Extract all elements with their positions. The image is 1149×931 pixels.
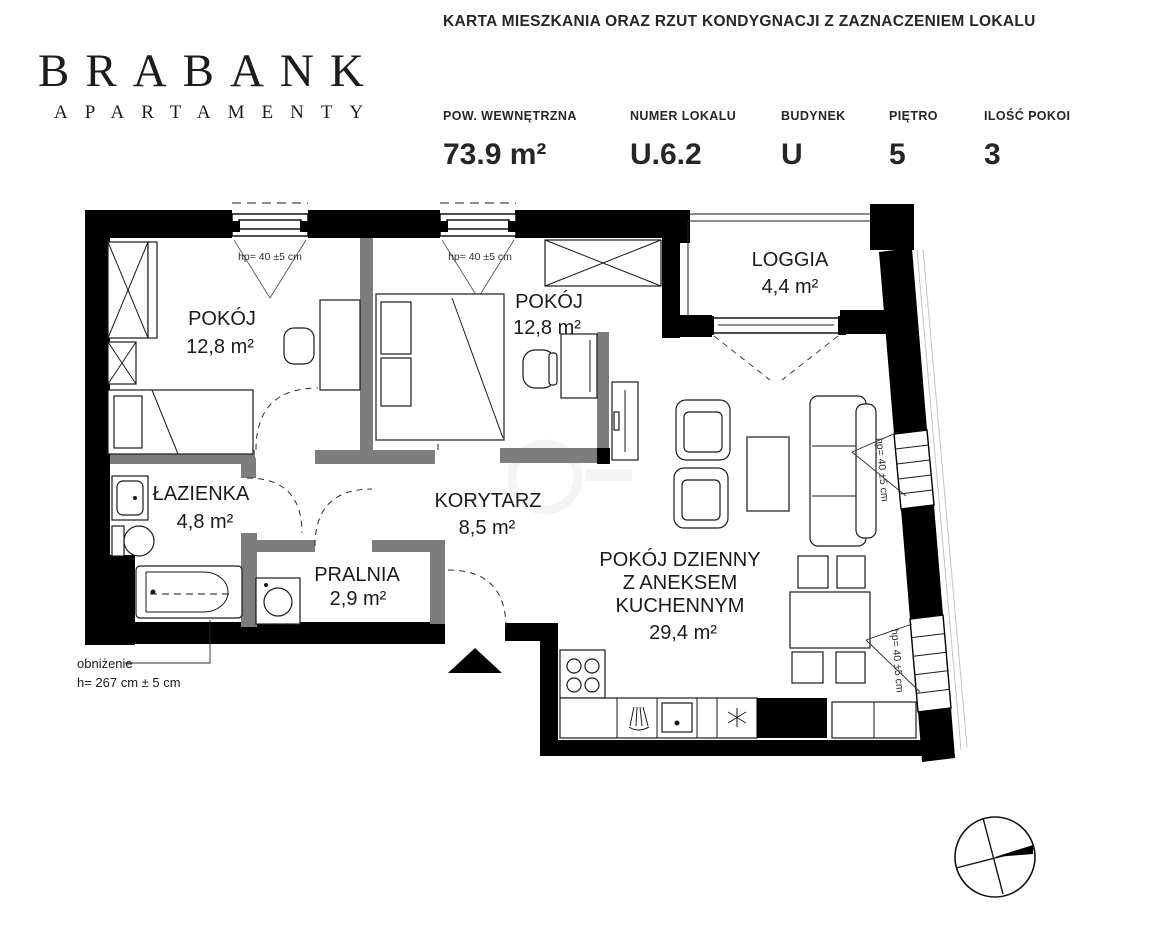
- window-height-note-2: hp= 40 ±5 cm: [448, 251, 512, 263]
- window-height-note-1: hp= 40 ±5 cm: [238, 251, 302, 263]
- room1-area: 12,8 m²: [186, 336, 254, 358]
- laundry-name: PRALNIA: [314, 564, 400, 586]
- desk: [320, 300, 360, 390]
- room2-name: POKÓJ: [515, 290, 583, 313]
- loggia-name: LOGGIA: [752, 249, 829, 271]
- window-living-lower: [910, 615, 951, 712]
- desk-cabinet: [561, 334, 597, 398]
- room2-area: 12,8 m²: [513, 317, 581, 339]
- dining-chair: [837, 556, 865, 588]
- room1-name: POKÓJ: [188, 307, 256, 330]
- door-laundry: [315, 489, 372, 546]
- compass-icon: [955, 817, 1035, 897]
- living-name-2: Z ANEKSEM: [623, 572, 737, 594]
- loggia-door-window: [706, 316, 846, 380]
- living-name-1: POKÓJ DZIENNY: [599, 548, 760, 571]
- hallway-name: KORYTARZ: [434, 490, 541, 512]
- floor-plan: POKÓJ 12,8 m² POKÓJ 12,8 m² LOGGIA 4,4 m…: [0, 0, 1149, 931]
- dining-table: [790, 592, 870, 648]
- stove: [560, 650, 605, 698]
- dining-chair: [836, 652, 865, 683]
- door-bathroom: [247, 478, 302, 533]
- kitchen-counter: [560, 698, 757, 738]
- door-bedroom1: [256, 388, 318, 450]
- dining-chair: [792, 652, 823, 683]
- loggia-area: 4,4 m²: [762, 276, 819, 298]
- living-name-3: KUCHENNYM: [616, 595, 745, 617]
- door-entrance: [448, 570, 506, 628]
- chair: [284, 328, 314, 364]
- lowering-label: obniżenie: [77, 656, 133, 671]
- coffee-table: [747, 437, 789, 511]
- hallway-area: 8,5 m²: [459, 517, 516, 539]
- sink: [662, 703, 692, 732]
- entrance-arrow: [448, 648, 502, 673]
- svg-text:hp= 40 ±5 cm: hp= 40 ±5 cm: [888, 628, 906, 693]
- bathroom-name: ŁAZIENKA: [153, 483, 250, 505]
- furniture-laundry: [256, 578, 300, 624]
- lowering-value: h= 267 cm ± 5 cm: [77, 675, 181, 690]
- window-living-upper: [894, 430, 934, 509]
- dining-chair: [798, 556, 828, 588]
- toilet: [112, 526, 124, 556]
- living-area: 29,4 m²: [649, 622, 717, 644]
- laundry-area: 2,9 m²: [330, 588, 387, 610]
- apartment-card-page: { "header": { "logo": { "name": "BRABANK…: [0, 0, 1149, 931]
- bathroom-area: 4,8 m²: [177, 511, 234, 533]
